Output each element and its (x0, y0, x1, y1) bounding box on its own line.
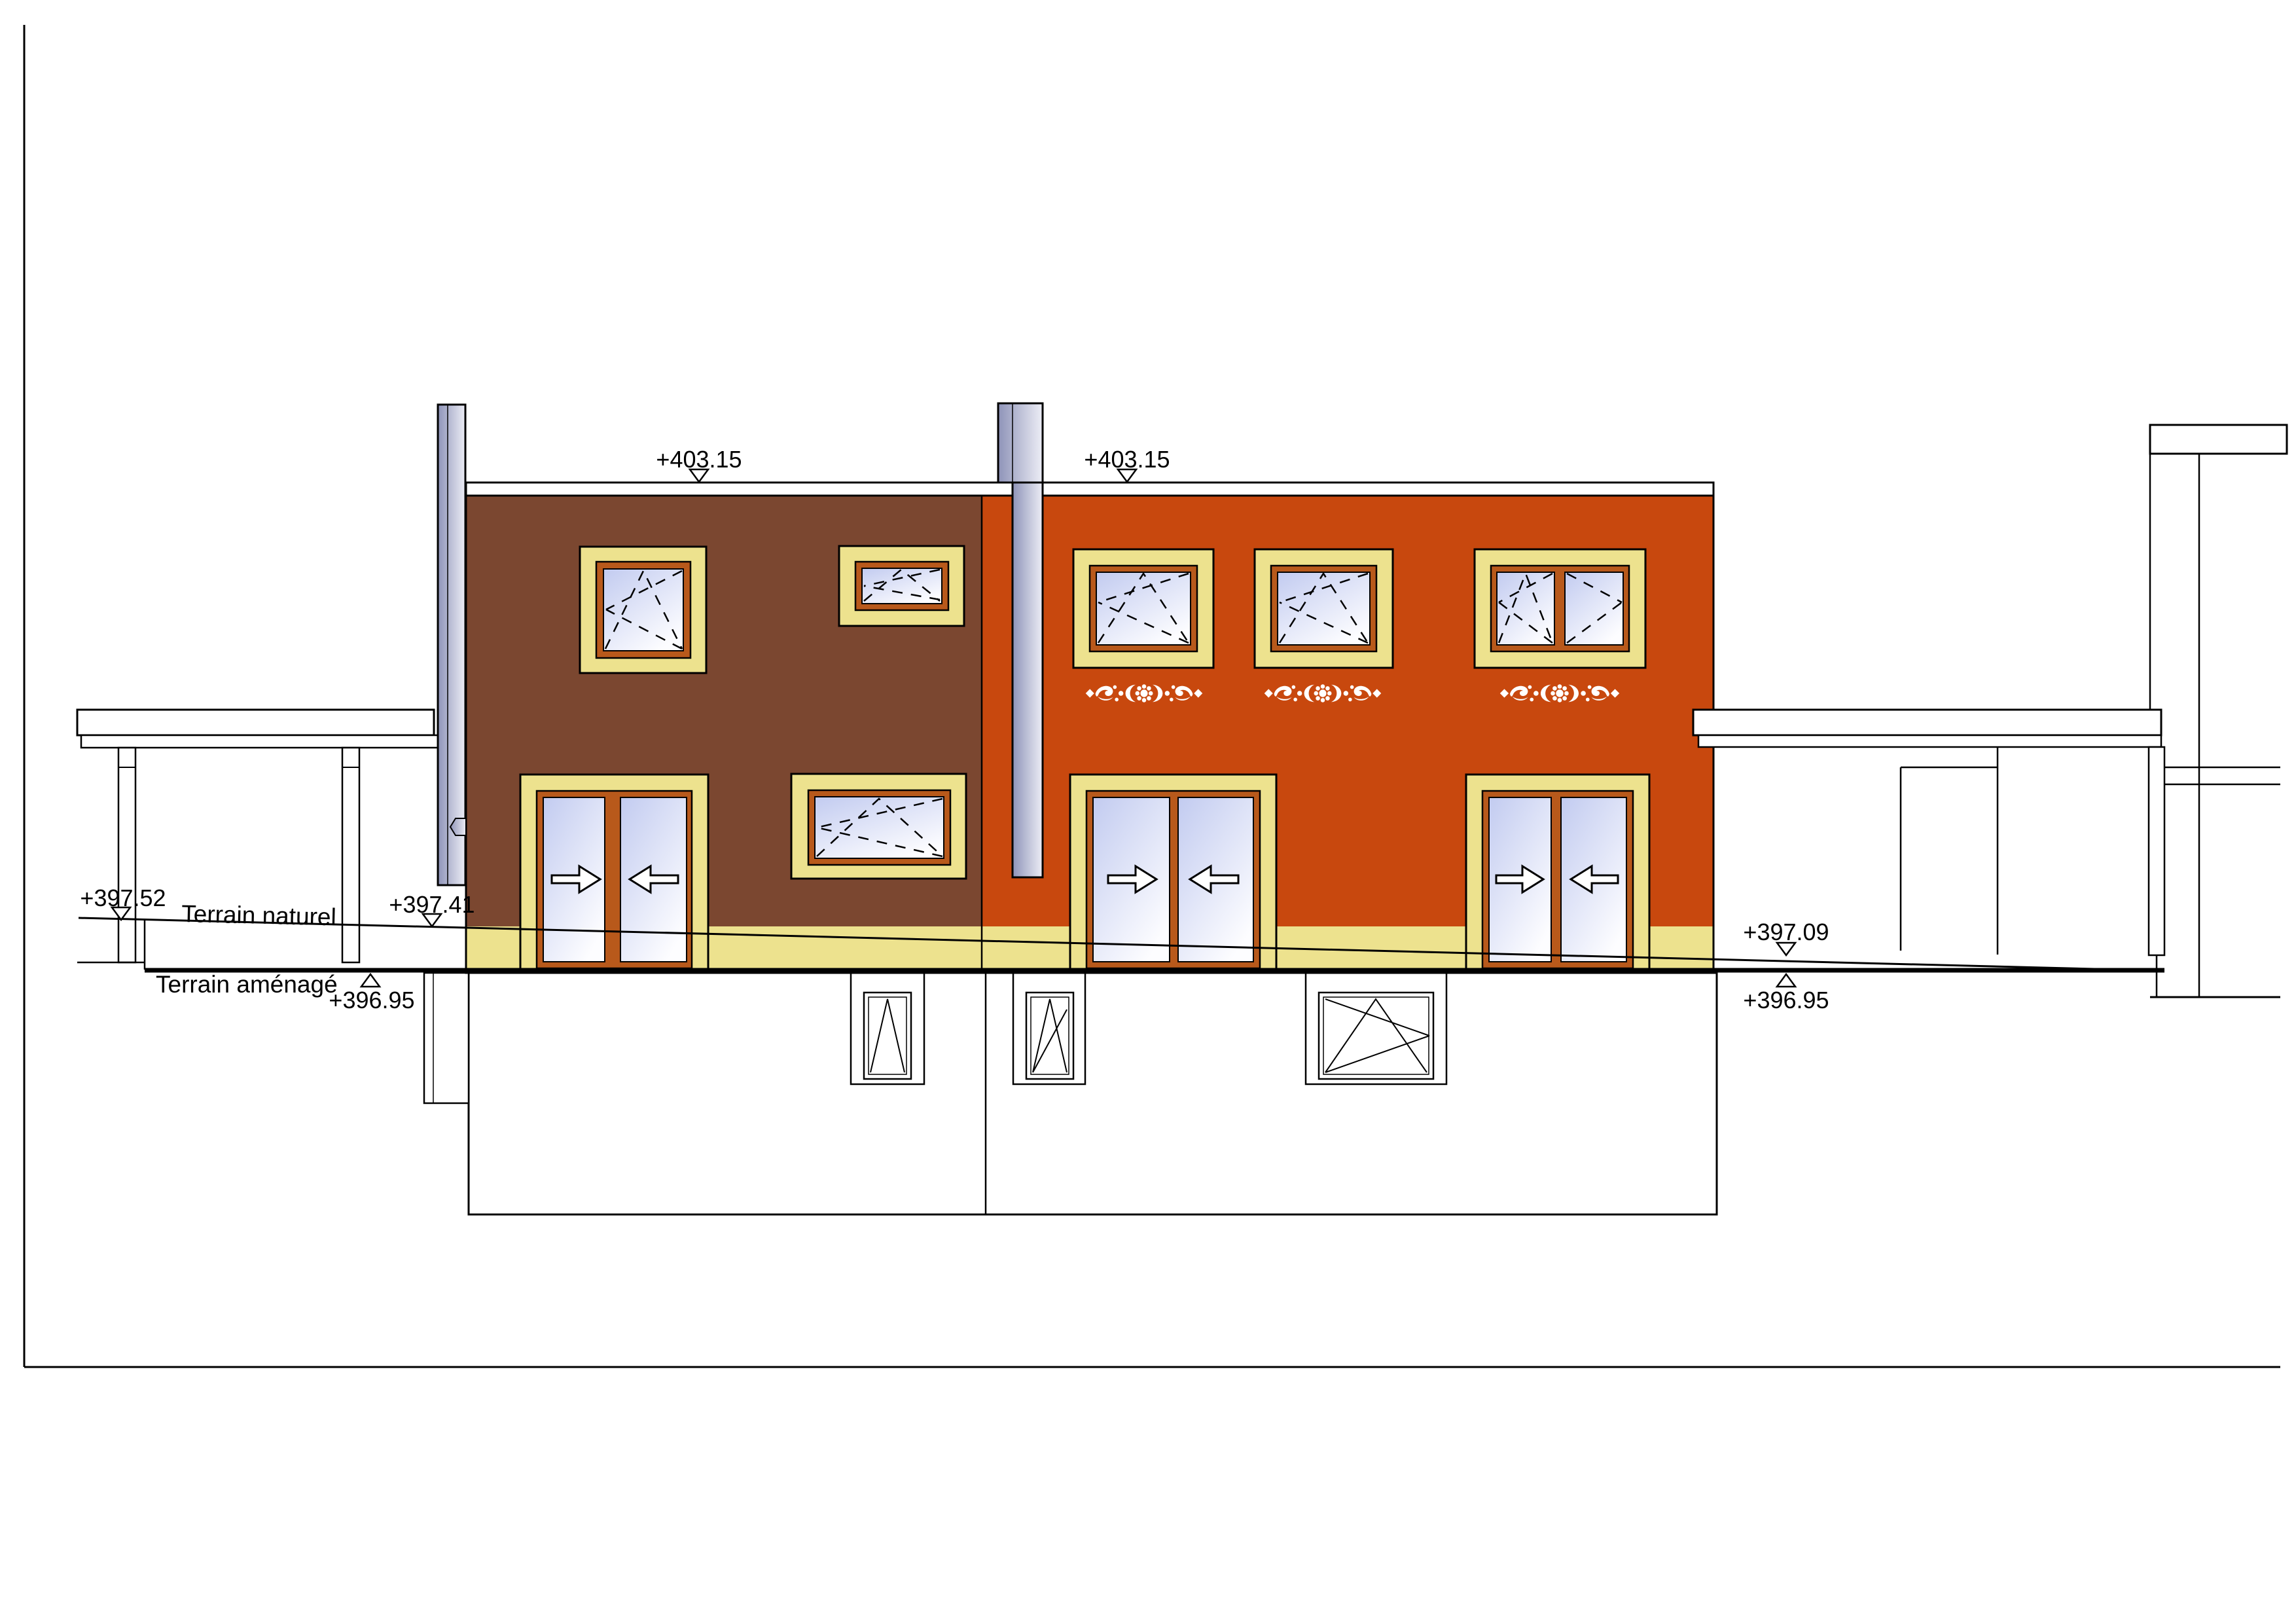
level-triangle-down-icon (423, 914, 441, 926)
facade-elevation-canvas: +403.15 +403.15 +397.52 +397.41 +396.95 … (0, 0, 2296, 1623)
sliding-door-right-house-2 (1466, 775, 1649, 973)
basement (424, 973, 1717, 1214)
window-upper-left (580, 547, 706, 673)
level-marker-397-41: +397.41 (389, 891, 475, 926)
level-marker-roof-right: +403.15 (1084, 446, 1170, 482)
chimney-body (438, 405, 465, 885)
window-sash (1323, 997, 1429, 1074)
level-marker-397-52: +397.52 (80, 884, 166, 920)
window-glass (603, 569, 683, 651)
left-pergola-post-1 (118, 748, 135, 962)
neighbour-roof-slab (2150, 425, 2287, 454)
neighbour-building (2150, 425, 2287, 997)
terrain-amenage-label: Terrain aménagé (156, 971, 338, 998)
basement-window-middle (1013, 973, 1085, 1084)
basement-outline (469, 973, 1717, 1214)
level-triangle-down-icon (690, 469, 708, 482)
level-triangle-up-icon (1777, 974, 1795, 987)
level-marker-397-09: +397.09 (1743, 919, 1829, 955)
window-upper-small (839, 546, 964, 626)
level-triangle-down-icon (1777, 943, 1795, 955)
terrain-naturel-label: Terrain naturel (181, 900, 336, 930)
level-text: +397.09 (1743, 919, 1829, 945)
roof-slab (466, 483, 1713, 496)
window-glass-left-sash (1497, 572, 1554, 645)
level-text: +396.95 (1743, 987, 1829, 1013)
chimney-head (998, 403, 1043, 483)
left-pergola-post-2 (342, 748, 359, 962)
right-pergola-roof-slab (1693, 710, 2161, 735)
window-sash (869, 997, 906, 1074)
level-triangle-up-icon (361, 974, 380, 987)
window-sash (1031, 997, 1069, 1074)
window-right-3 (1475, 549, 1645, 668)
level-triangle-down-icon (1118, 469, 1136, 482)
right-pergola-fascia (1698, 735, 2161, 747)
window-glass (815, 797, 944, 858)
chimney-left (438, 405, 466, 885)
basement-left-projection (424, 973, 469, 1103)
window-middle (791, 774, 966, 879)
basement-window-left (851, 973, 924, 1084)
window-right-2 (1255, 549, 1393, 668)
level-marker-396-95-right: +396.95 (1743, 974, 1829, 1013)
sliding-door-left-house (520, 775, 708, 973)
left-pergola-fascia (81, 735, 472, 748)
level-text: +396.95 (329, 987, 414, 1013)
basement-window-right (1306, 973, 1446, 1084)
window-right-1 (1073, 549, 1213, 668)
chimney-flue (1013, 483, 1043, 877)
right-pergola-post (2149, 747, 2164, 955)
left-pergola-roof-slab (77, 710, 434, 735)
elevation-drawing-page: +403.15 +403.15 +397.52 +397.41 +396.95 … (0, 0, 2296, 1623)
level-marker-396-95-left: +396.95 (329, 974, 414, 1013)
level-marker-roof-left: +403.15 (656, 446, 742, 482)
